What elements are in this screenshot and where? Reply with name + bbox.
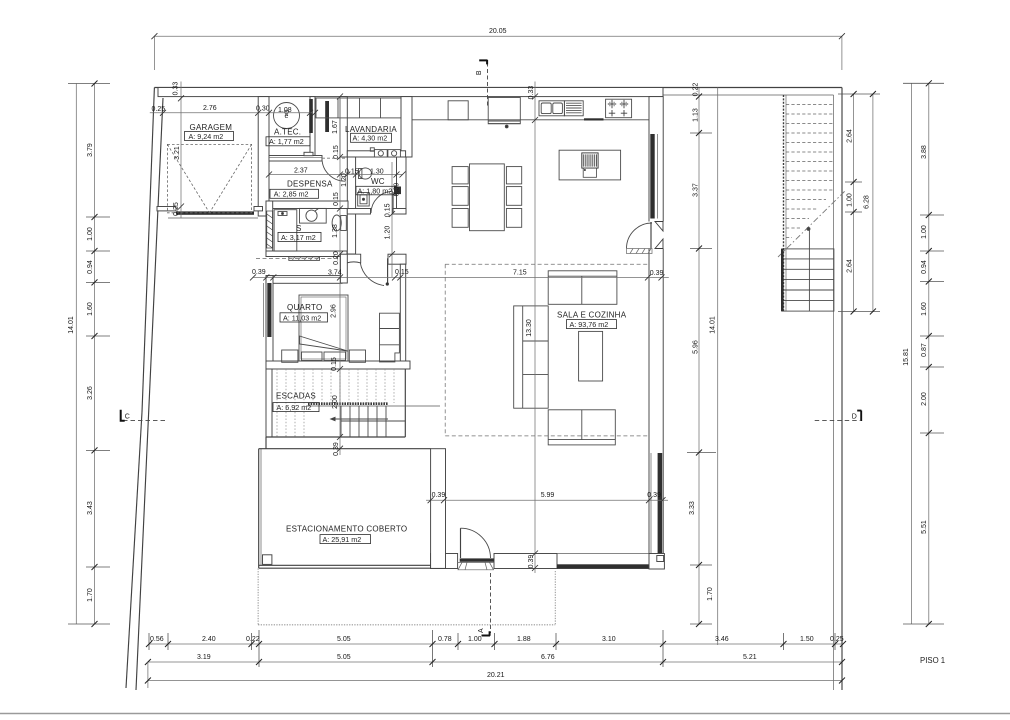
svg-text:0.33: 0.33 — [173, 82, 180, 96]
svg-text:0.39: 0.39 — [650, 270, 664, 277]
svg-text:1.50: 1.50 — [800, 636, 814, 643]
svg-text:1.20: 1.20 — [385, 226, 392, 240]
svg-text:5.05: 5.05 — [337, 636, 351, 643]
svg-text:3.33: 3.33 — [689, 501, 696, 515]
svg-text:2.76: 2.76 — [203, 105, 217, 112]
svg-text:1.88: 1.88 — [517, 636, 531, 643]
svg-text:A: A — [478, 628, 485, 633]
svg-text:14.01: 14.01 — [710, 316, 717, 334]
svg-text:3.37: 3.37 — [693, 183, 700, 197]
svg-text:0.94: 0.94 — [921, 260, 928, 274]
svg-text:3.21: 3.21 — [174, 146, 181, 160]
svg-text:2.37: 2.37 — [294, 168, 308, 175]
svg-text:1.70: 1.70 — [87, 588, 94, 602]
svg-text:WC: WC — [371, 177, 385, 186]
svg-text:S: S — [296, 224, 302, 233]
svg-text:0.25: 0.25 — [830, 636, 844, 643]
svg-text:0.39: 0.39 — [394, 183, 401, 197]
svg-text:5.96: 5.96 — [693, 340, 700, 354]
svg-text:0.39: 0.39 — [432, 492, 446, 499]
svg-text:GARAGEM: GARAGEM — [190, 123, 233, 132]
svg-text:15.81: 15.81 — [903, 348, 910, 366]
svg-text:0.15: 0.15 — [333, 192, 340, 206]
svg-text:0.56: 0.56 — [150, 636, 164, 643]
svg-text:QUARTO: QUARTO — [287, 303, 322, 312]
svg-text:1.38: 1.38 — [332, 224, 339, 238]
svg-text:3.43: 3.43 — [87, 501, 94, 515]
svg-text:2.64: 2.64 — [847, 259, 854, 273]
svg-text:0.22: 0.22 — [246, 636, 260, 643]
svg-text:0.15: 0.15 — [333, 145, 340, 159]
svg-text:2.00: 2.00 — [332, 395, 339, 409]
svg-text:DESPENSA: DESPENSA — [287, 180, 333, 189]
svg-text:0.78: 0.78 — [438, 636, 452, 643]
svg-text:PISO 1: PISO 1 — [920, 656, 945, 665]
svg-text:3.26: 3.26 — [87, 386, 94, 400]
svg-text:A: 1,80 m2: A: 1,80 m2 — [358, 186, 393, 195]
svg-text:1.67: 1.67 — [332, 120, 339, 134]
svg-text:5.21: 5.21 — [743, 654, 757, 661]
svg-text:1.60: 1.60 — [921, 302, 928, 316]
svg-text:0.30: 0.30 — [256, 106, 270, 113]
svg-text:1.00: 1.00 — [847, 193, 854, 207]
svg-text:ESCADAS: ESCADAS — [276, 392, 316, 401]
svg-text:A: 3,17 m2: A: 3,17 m2 — [281, 233, 316, 242]
svg-text:0.39: 0.39 — [647, 492, 661, 499]
svg-text:0.39: 0.39 — [252, 269, 266, 276]
svg-text:A: 2,85 m2: A: 2,85 m2 — [274, 190, 309, 199]
svg-text:3.88: 3.88 — [921, 145, 928, 159]
svg-text:A: 11,03 m2: A: 11,03 m2 — [283, 313, 321, 322]
svg-text:0.94: 0.94 — [87, 260, 94, 274]
svg-text:20.05: 20.05 — [489, 28, 507, 35]
svg-text:0.22: 0.22 — [693, 83, 700, 97]
svg-text:7.15: 7.15 — [513, 270, 527, 277]
svg-text:A: 9,24 m2: A: 9,24 m2 — [189, 132, 224, 141]
svg-text:e: e — [285, 113, 289, 120]
svg-text:6.28: 6.28 — [864, 195, 871, 209]
svg-text:14.01: 14.01 — [68, 316, 75, 334]
svg-text:5.51: 5.51 — [921, 520, 928, 534]
svg-text:2.96: 2.96 — [331, 304, 338, 318]
svg-text:2.40: 2.40 — [202, 636, 216, 643]
svg-text:SALA E COZINHA: SALA E COZINHA — [557, 311, 627, 320]
svg-text:C: C — [125, 413, 130, 420]
svg-text:20.21: 20.21 — [487, 672, 505, 679]
svg-text:B: B — [476, 70, 483, 75]
svg-text:1.00: 1.00 — [921, 225, 928, 239]
svg-text:A: 1,77 m2: A: 1,77 m2 — [269, 137, 304, 146]
svg-text:3.74: 3.74 — [328, 269, 342, 276]
svg-text:3.10: 3.10 — [602, 636, 616, 643]
svg-text:A: 93,76 m2: A: 93,76 m2 — [570, 320, 609, 329]
svg-text:2.64: 2.64 — [847, 129, 854, 143]
svg-text:A: 4,30 m2: A: 4,30 m2 — [353, 134, 388, 143]
svg-text:0.87: 0.87 — [921, 343, 928, 357]
svg-text:1.30: 1.30 — [370, 168, 384, 175]
svg-text:1.60: 1.60 — [87, 302, 94, 316]
svg-text:3.19: 3.19 — [197, 654, 211, 661]
svg-text:2.00: 2.00 — [921, 392, 928, 406]
svg-text:3.79: 3.79 — [87, 143, 94, 157]
svg-text:0.20: 0.20 — [333, 251, 340, 265]
svg-text:5.05: 5.05 — [337, 654, 351, 661]
svg-text:1.70: 1.70 — [707, 587, 714, 601]
svg-text:1.00: 1.00 — [87, 227, 94, 241]
svg-text:6.76: 6.76 — [541, 654, 555, 661]
svg-text:A.TEC.: A.TEC. — [274, 128, 301, 137]
svg-text:0.39: 0.39 — [528, 555, 535, 569]
svg-text:A: 25,91 m2: A: 25,91 m2 — [323, 535, 362, 544]
svg-text:13.30: 13.30 — [526, 319, 533, 337]
svg-text:0.25: 0.25 — [152, 106, 166, 113]
svg-text:3.46: 3.46 — [715, 636, 729, 643]
svg-text:1.08: 1.08 — [278, 107, 292, 114]
svg-text:A: 6,92 m2: A: 6,92 m2 — [277, 403, 312, 412]
svg-text:1.13: 1.13 — [693, 108, 700, 122]
svg-text:D: D — [852, 413, 857, 420]
svg-text:5.99: 5.99 — [541, 492, 555, 499]
svg-text:0.15: 0.15 — [331, 357, 338, 371]
svg-text:0.39: 0.39 — [333, 442, 340, 456]
svg-text:1.00: 1.00 — [468, 636, 482, 643]
svg-text:ESTACIONAMENTO COBERTO: ESTACIONAMENTO COBERTO — [286, 525, 407, 534]
